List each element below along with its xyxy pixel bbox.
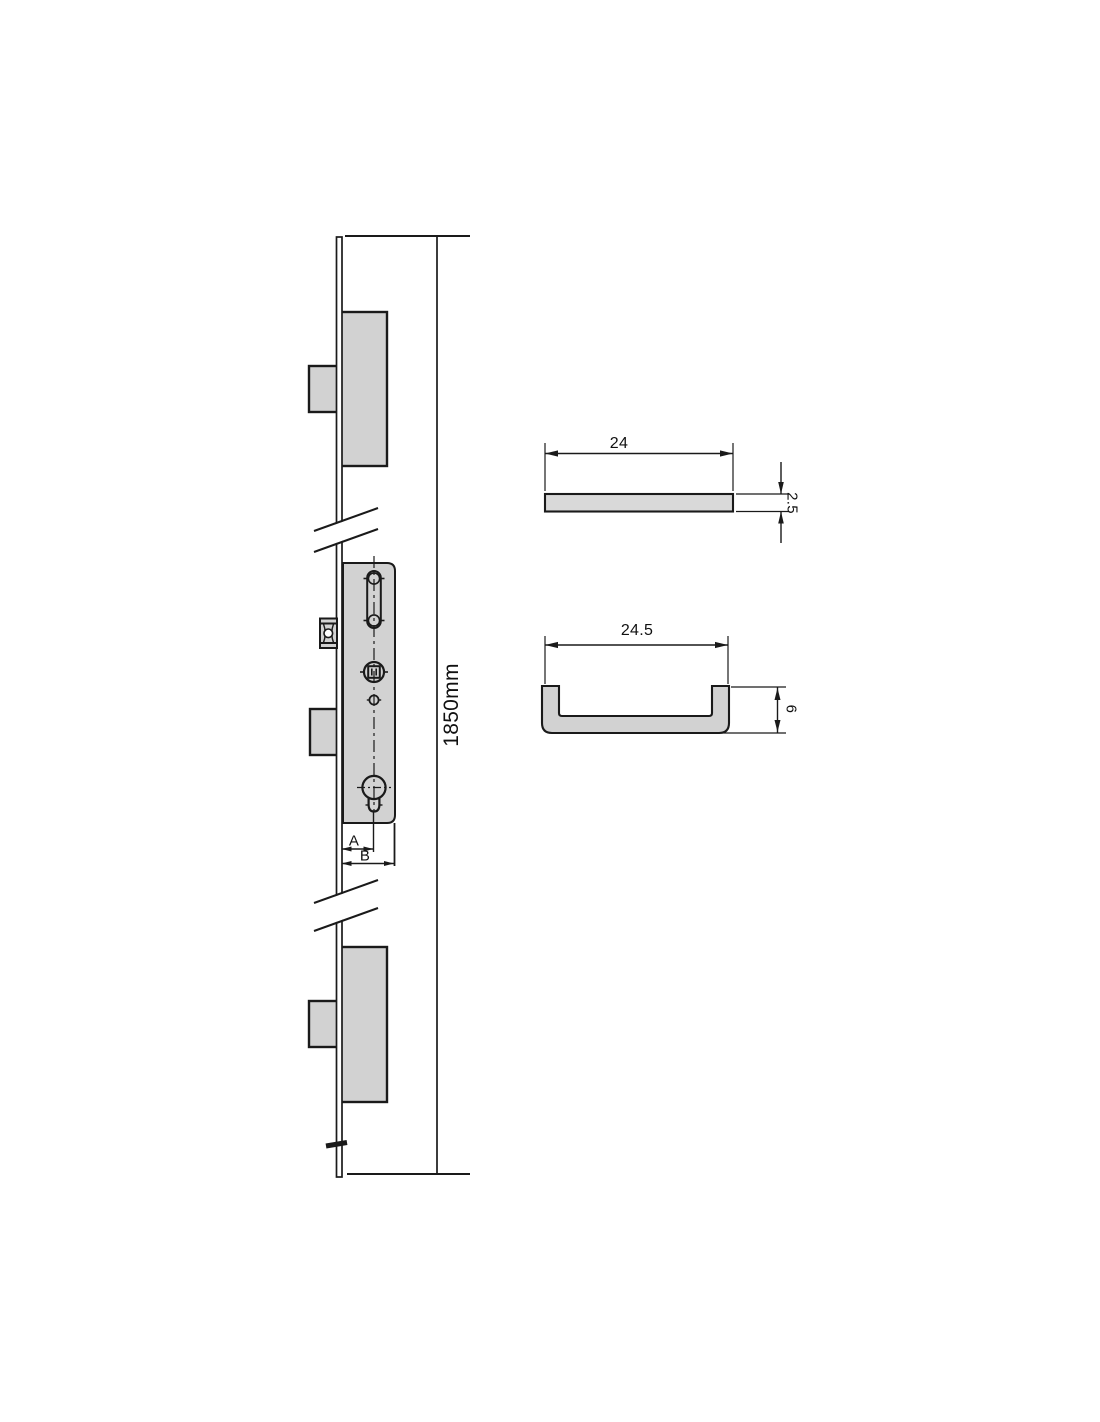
channel-width-label: 24.5	[621, 622, 653, 640]
bottom-lock-case	[340, 947, 387, 1102]
overall-length-label: 1850mm	[440, 663, 464, 747]
bottom-latch-bolt	[309, 1001, 340, 1047]
channel-cross-section	[542, 636, 786, 733]
faceplate-cross-section	[545, 443, 789, 543]
faceplate-width-label: 24	[610, 435, 628, 453]
top-latch-bolt	[309, 366, 340, 412]
lock-elevation-view	[309, 237, 395, 1177]
middle-latch-bolt	[310, 709, 338, 755]
channel-depth-label: 6	[783, 705, 800, 714]
faceplate-bar	[545, 494, 733, 512]
top-lock-case	[340, 312, 387, 466]
technical-drawing-canvas: 1850mm A B 24 2.5 24.5 6	[0, 0, 1100, 1422]
bottom-screw	[326, 1143, 347, 1147]
dim-b-label: B	[360, 848, 370, 865]
faceplate	[337, 237, 343, 1177]
roller-cam	[320, 619, 337, 649]
dim-a-label: A	[349, 833, 359, 850]
gearbox-case	[343, 563, 395, 823]
u-channel	[542, 686, 729, 733]
lock-drawing	[0, 0, 1100, 1422]
faceplate-thickness-label: 2.5	[784, 492, 801, 514]
